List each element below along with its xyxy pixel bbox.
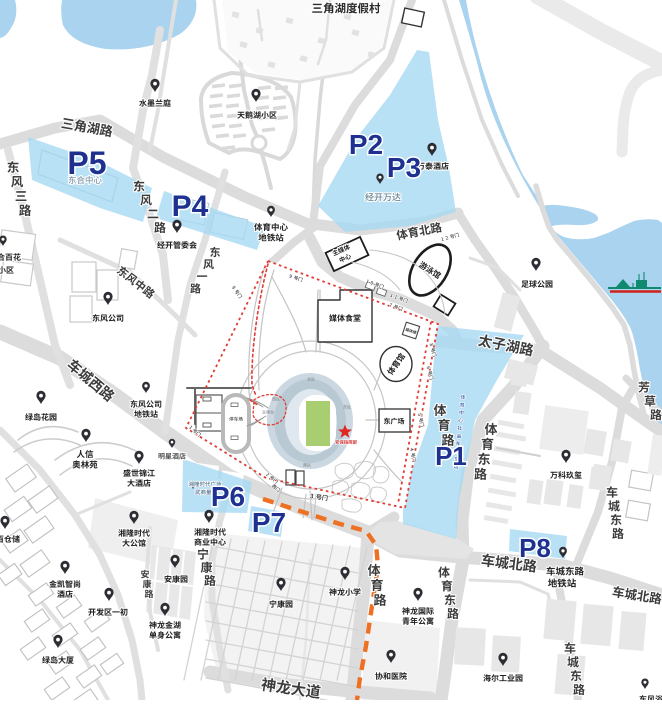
svg-text:P5: P5 [67,145,106,181]
svg-text:P1: P1 [435,441,467,471]
svg-text:P8: P8 [519,533,551,563]
svg-text:P3: P3 [387,152,421,183]
svg-text:P7: P7 [252,507,286,538]
svg-text:P2: P2 [349,129,383,160]
svg-text:P4: P4 [172,190,209,223]
svg-text:P6: P6 [211,481,245,512]
